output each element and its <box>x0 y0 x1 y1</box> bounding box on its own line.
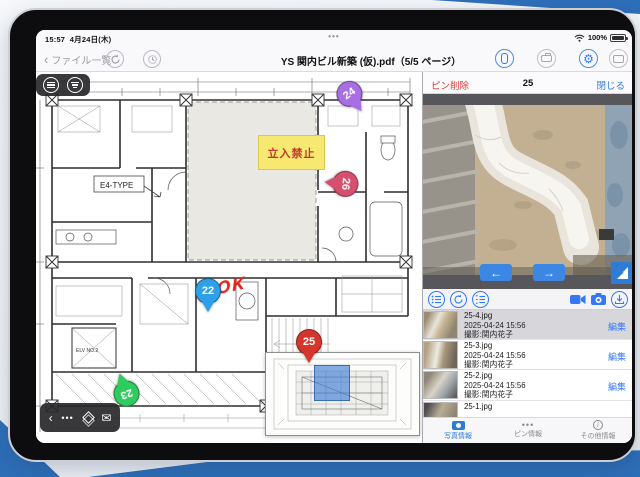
photo-author: 撮影:関内花子 <box>464 330 513 339</box>
photo-datetime: 2025-04-24 15:56 <box>464 321 526 330</box>
pin-number: 26 <box>339 177 352 190</box>
filter-icon[interactable] <box>67 77 83 93</box>
previous-photo-button[interactable]: ← <box>480 264 512 281</box>
multitask-dots-icon[interactable]: ••• <box>36 32 632 41</box>
layers-icon[interactable] <box>83 413 93 423</box>
map-pin-22[interactable]: 22 <box>195 278 221 313</box>
tab-photo-info[interactable]: 写真情報 <box>423 418 493 443</box>
photo-author: 撮影:関内花子 <box>464 360 513 369</box>
numbered-list-icon <box>475 294 486 305</box>
panel-tab-bar: 写真情報 ••• ピン情報 i その他情報 <box>423 417 632 443</box>
pin-number: 23 <box>119 386 135 401</box>
edit-photo-button[interactable]: 編集 <box>608 350 626 363</box>
wifi-icon <box>574 34 585 42</box>
pin-head: 25 <box>296 329 322 355</box>
battery-percent: 100% <box>588 33 607 42</box>
bullet-list-icon <box>431 294 442 305</box>
chevron-left-icon: ‹ <box>44 55 48 65</box>
photo-toolbar <box>423 289 632 310</box>
photo-datetime: 2025-04-24 15:56 <box>464 381 526 390</box>
info-tab-icon: i <box>593 420 603 430</box>
settings-button[interactable]: ⚙ <box>579 49 598 68</box>
numbered-list-button[interactable] <box>472 291 489 308</box>
reload-icon <box>453 294 464 305</box>
tab-label: その他情報 <box>581 431 616 441</box>
photo-row[interactable]: 25-2.jpg 2025-04-24 15:56 撮影:関内花子 編集 <box>423 370 632 401</box>
back-label: ファイル一覧 <box>51 52 111 67</box>
pin-detail-panel: ピン削除 25 閉じる <box>422 72 632 443</box>
pin-number: 24 <box>341 85 358 102</box>
envelope-icon[interactable]: ✉ <box>101 412 111 424</box>
photo-author: 撮影:関内花子 <box>464 390 513 399</box>
construction-photo <box>423 105 632 275</box>
viewport-indicator[interactable] <box>314 365 350 401</box>
edit-photo-button[interactable]: 編集 <box>608 320 626 333</box>
photo-row[interactable]: 25-3.jpg 2025-04-24 15:56 撮影:関内花子 編集 <box>423 340 632 370</box>
photo-filename: 25-4.jpg <box>464 311 492 320</box>
status-bar: 15:57 4月24日(木) ••• 100% <box>36 30 632 46</box>
plan-layers-toolbar <box>36 74 90 96</box>
expand-triangle-icon <box>614 265 630 281</box>
sync-status-button[interactable] <box>143 50 161 68</box>
more-dots-icon[interactable]: ••• <box>61 412 73 424</box>
panel-header: ピン削除 25 閉じる <box>423 72 632 94</box>
app-screen: 15:57 4月24日(木) ••• 100% ‹ファイル一覧 YS 関内ビル新… <box>36 30 632 443</box>
pin-number: 22 <box>202 285 214 297</box>
list-icon[interactable] <box>43 77 59 93</box>
no-entry-annotation[interactable]: 立入禁止 <box>258 135 325 170</box>
edit-photo-button[interactable]: 編集 <box>608 380 626 393</box>
unit-type-tag: E4-TYPE <box>94 176 161 197</box>
pin-tail <box>324 176 335 189</box>
tab-label: 写真情報 <box>444 431 472 441</box>
document-title: YS 関内ビル新築 (仮).pdf（5/5 ページ） <box>276 53 466 68</box>
reload-list-button[interactable] <box>450 291 467 308</box>
photo-row[interactable]: 25-4.jpg 2025-04-24 15:56 撮影:関内花子 編集 <box>423 310 632 340</box>
photo-thumbnail[interactable] <box>423 311 458 339</box>
gear-icon: ⚙ <box>583 53 594 65</box>
refresh-button[interactable] <box>106 50 124 68</box>
photo-thumbnail[interactable] <box>423 371 458 399</box>
bullet-list-button[interactable] <box>428 291 445 308</box>
mockup-background: 15:57 4月24日(木) ••• 100% ‹ファイル一覧 YS 関内ビル新… <box>0 0 640 477</box>
next-photo-button[interactable]: → <box>533 264 565 281</box>
photo-viewer[interactable]: ← → <box>423 94 632 289</box>
sync-icon <box>147 54 158 65</box>
photo-thumbnail[interactable] <box>423 402 458 417</box>
drawing-pane[interactable]: ELV NO.2 E4-TYPE 立入禁止 OK <box>36 72 422 443</box>
photo-datetime: 2025-04-24 15:56 <box>464 351 526 360</box>
overview-minimap[interactable] <box>265 352 420 436</box>
display-mode-button[interactable] <box>609 49 628 68</box>
display-icon <box>613 55 624 63</box>
pin-mode-icon <box>501 53 508 64</box>
map-pin-26[interactable]: 26 <box>322 169 359 198</box>
tab-other-info[interactable]: i その他情報 <box>563 418 632 443</box>
close-panel-button[interactable]: 閉じる <box>596 78 625 92</box>
camera-button[interactable] <box>591 293 606 305</box>
elevator: ELV NO.2 <box>72 328 116 368</box>
import-icon <box>614 294 625 305</box>
photo-list: 25-4.jpg 2025-04-24 15:56 撮影:関内花子 編集 25-… <box>423 310 632 417</box>
battery-icon <box>610 34 626 42</box>
plan-bottom-toolbar: ‹ ••• ✉ <box>40 403 120 432</box>
tab-label: ピン情報 <box>514 429 542 439</box>
pin-tail <box>202 302 214 312</box>
toolbox-icon <box>541 55 552 62</box>
pin-head: 22 <box>195 278 221 304</box>
photo-row[interactable]: 25-1.jpg <box>423 401 632 417</box>
import-photo-button[interactable] <box>611 291 628 308</box>
camera-tab-icon <box>452 421 465 430</box>
toolbox-button[interactable] <box>537 49 556 68</box>
collapse-chevron-icon[interactable]: ‹ <box>49 412 53 424</box>
map-pin-25[interactable]: 25 <box>296 329 322 364</box>
pin-tail <box>303 353 315 363</box>
unit-type-label: E4-TYPE <box>100 181 133 190</box>
pin-number: 25 <box>303 336 315 348</box>
video-camera-button[interactable] <box>570 294 586 305</box>
photo-filename: 25-3.jpg <box>464 341 492 350</box>
expand-photo-button[interactable] <box>611 262 632 284</box>
restricted-zone <box>188 102 316 260</box>
back-to-file-list-button[interactable]: ‹ファイル一覧 <box>44 52 111 67</box>
pin-mode-button[interactable] <box>495 49 514 68</box>
ipad-frame: 15:57 4月24日(木) ••• 100% ‹ファイル一覧 YS 関内ビル新… <box>8 8 637 462</box>
elevator-label: ELV NO.2 <box>76 348 98 354</box>
refresh-icon <box>110 54 121 65</box>
photo-thumbnail[interactable] <box>423 341 458 369</box>
navigation-bar: ‹ファイル一覧 YS 関内ビル新築 (仮).pdf（5/5 ページ） ⚙ <box>36 46 632 72</box>
pin-head: 26 <box>331 170 359 198</box>
photo-filename: 25-1.jpg <box>464 402 492 411</box>
tab-pin-info[interactable]: ••• ピン情報 <box>493 418 563 443</box>
ellipsis-tab-icon: ••• <box>522 422 534 428</box>
photo-filename: 25-2.jpg <box>464 371 492 380</box>
